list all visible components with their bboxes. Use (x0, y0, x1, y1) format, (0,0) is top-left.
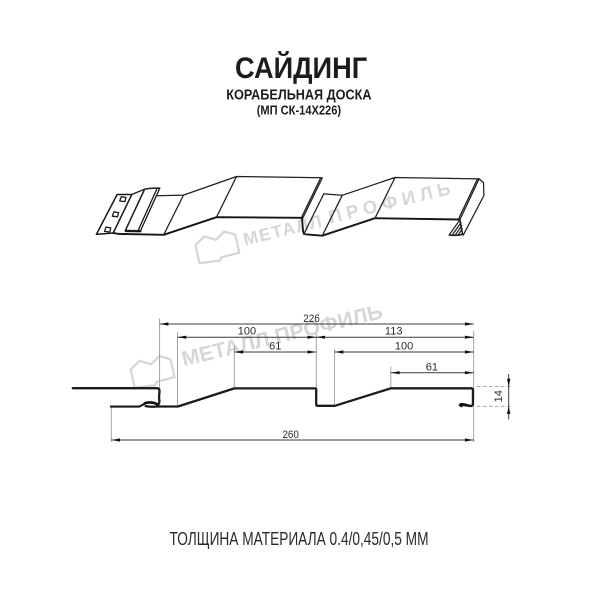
svg-text:КОРАБЕЛЬНАЯ ДОСКА: КОРАБЕЛЬНАЯ ДОСКА (226, 87, 371, 103)
svg-text:260: 260 (282, 429, 299, 441)
svg-text:(МП СК-14Х226): (МП СК-14Х226) (257, 104, 341, 118)
svg-text:МЕТАЛЛ ПРОФИЛЬ: МЕТАЛЛ ПРОФИЛЬ (179, 300, 385, 371)
svg-text:61: 61 (426, 361, 438, 373)
svg-text:ТОЛЩИНА МАТЕРИАЛА 0.4/0,45/0,5: ТОЛЩИНА МАТЕРИАЛА 0.4/0,45/0,5 ММ (170, 529, 429, 549)
svg-text:14: 14 (493, 390, 505, 402)
svg-text:113: 113 (385, 326, 403, 338)
svg-text:САЙДИНГ: САЙДИНГ (235, 51, 367, 85)
svg-text:100: 100 (238, 326, 256, 338)
svg-text:226: 226 (303, 313, 320, 325)
svg-text:61: 61 (269, 341, 281, 353)
svg-text:100: 100 (395, 341, 413, 353)
